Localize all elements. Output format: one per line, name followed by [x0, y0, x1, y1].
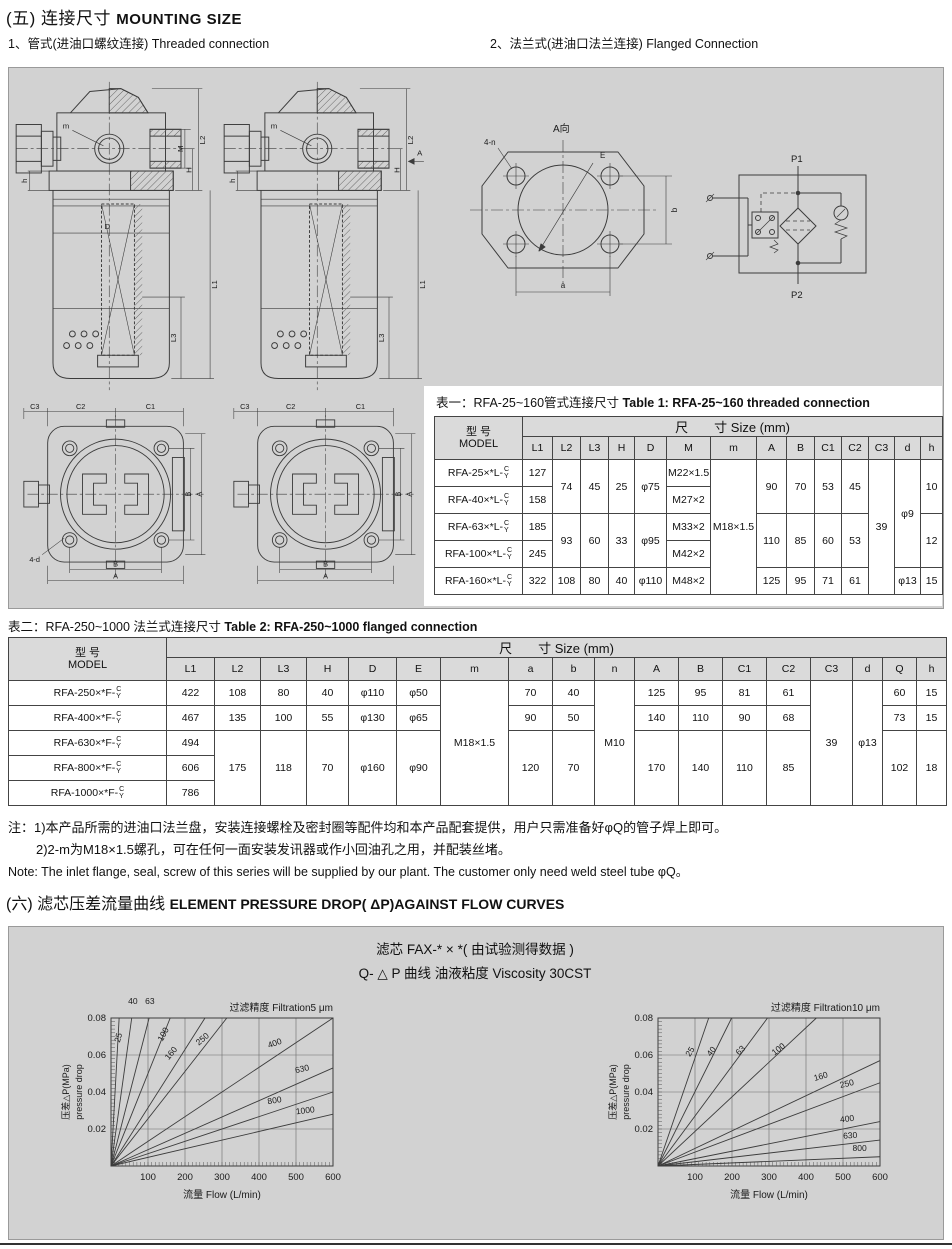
dim-label-a: a [561, 281, 566, 290]
pressure-drop-chart-5um: 过滤精度 Filtration5 μm1002003004005006000.0… [55, 984, 375, 1224]
series-label-1000: 1000 [295, 1104, 315, 1116]
y-tick-label: 0.02 [88, 1124, 107, 1135]
table-cell: 118 [261, 731, 307, 806]
table-cell: φ110 [635, 568, 667, 595]
y-axis-label-en: pressure drop [74, 1064, 84, 1120]
x-tick-label: 400 [798, 1172, 814, 1183]
table-cell: 80 [261, 681, 307, 706]
series-label-630: 630 [294, 1062, 310, 1075]
column-header-C2: C2 [842, 437, 869, 460]
table1-container: 型 号MODEL尺 寸 Size (mm)L1L2L3HDMmABC1C2C3d… [434, 416, 943, 595]
column-header-C1: C1 [723, 658, 767, 681]
table-cell: 494 [167, 731, 215, 756]
column-header-H: H [609, 437, 635, 460]
subtitle-threaded: 1、管式(进油口螺纹连接) Threaded connection [8, 33, 269, 52]
x-tick-label: 600 [872, 1172, 888, 1183]
column-header-b: b [553, 658, 595, 681]
dim-label-L3: L3 [169, 334, 178, 343]
note-line-1: 注：1)本产品所需的进油口法兰盘，安装连接螺栓及密封圈等配件均和本产品配套提供，… [8, 817, 944, 839]
x-tick-label: 500 [288, 1172, 304, 1183]
table-cell: M33×2 [667, 514, 711, 541]
table-cell: 422 [167, 681, 215, 706]
series-label-100: 100 [155, 1025, 171, 1042]
dim-label-B-bottom: B [323, 560, 328, 569]
dim-label-L2: L2 [406, 136, 415, 145]
table-cell: RFA-250×*F-CY [9, 681, 167, 706]
table-cell: 18 [917, 731, 947, 806]
table1-title: 表一：RFA-25~160管式连接尺寸 Table 1: RFA-25~160 … [436, 392, 870, 411]
dim-label-A-bottom: A [323, 572, 328, 581]
pressure-drop-chart-10um: 过滤精度 Filtration10 μm1002003004005006000.… [602, 984, 922, 1224]
table-cell: 110 [757, 514, 787, 568]
model-suffix-stack: CY [119, 786, 124, 800]
table-cell: φ13 [895, 568, 921, 595]
table-cell: 53 [815, 460, 842, 514]
notes-block: 注：1)本产品所需的进油口法兰盘，安装连接螺栓及密封圈等配件均和本产品配套提供，… [8, 817, 944, 883]
series-label-63: 63 [145, 996, 155, 1006]
table-cell: 25 [609, 460, 635, 514]
table-cell: 40 [609, 568, 635, 595]
table-cell: M42×2 [667, 541, 711, 568]
x-axis-label: 流量 Flow (L/min) [730, 1188, 808, 1201]
series-label-250: 250 [839, 1077, 855, 1090]
column-header-n: n [595, 658, 635, 681]
hydraulic-circuit-symbol: P1 P2 [698, 126, 948, 316]
column-header-D: D [349, 658, 397, 681]
series-label-250: 250 [194, 1030, 212, 1047]
table-cell: 467 [167, 706, 215, 731]
series-label-630: 630 [843, 1130, 858, 1141]
dim-label-B-right: B [394, 492, 403, 497]
series-label-800: 800 [853, 1143, 867, 1153]
size-header: 尺 寸 Size (mm) [167, 638, 947, 658]
table-cell: 68 [767, 706, 811, 731]
series-label-25: 25 [112, 1031, 124, 1043]
table-cell: 12 [921, 514, 943, 568]
table-cell: 74 [553, 460, 581, 514]
series-label-160: 160 [162, 1044, 179, 1062]
table-cell: 140 [635, 706, 679, 731]
spec-table: 型 号MODEL尺 寸 Size (mm)L1L2L3HDMmABC1C2C3d… [434, 416, 943, 595]
x-tick-label: 600 [325, 1172, 341, 1183]
table-cell: 110 [679, 706, 723, 731]
table-row: RFA-25×*L-CY127744525φ75M22×1.5M18×1.590… [435, 460, 943, 487]
dim-label-B-bottom: B [113, 560, 118, 569]
catalog-page: (五) 连接尺寸 MOUNTING SIZE 1、管式(进油口螺纹连接) Thr… [0, 0, 952, 1249]
table-cell: φ110 [349, 681, 397, 706]
y-tick-label: 0.04 [635, 1087, 654, 1098]
table-cell: 60 [815, 514, 842, 568]
x-tick-label: 300 [214, 1172, 230, 1183]
model-suffix-stack: CY [507, 574, 512, 588]
chart-caption: 过滤精度 Filtration5 μm [229, 1001, 333, 1014]
table-cell: 100 [261, 706, 307, 731]
model-suffix-stack: CY [116, 761, 121, 775]
column-header-C3: C3 [869, 437, 895, 460]
table-cell: 10 [921, 460, 943, 514]
table-cell: 85 [787, 514, 815, 568]
column-header-B: B [679, 658, 723, 681]
column-header-D: D [635, 437, 667, 460]
table-cell: M10 [595, 681, 635, 806]
dim-label-C2: C2 [286, 402, 295, 411]
note-line-en: Note: The inlet flange, seal, screw of t… [8, 861, 944, 883]
column-header-C2: C2 [767, 658, 811, 681]
table-cell: 127 [523, 460, 553, 487]
dim-label-C3: C3 [30, 402, 39, 411]
size-header: 尺 寸 Size (mm) [523, 417, 943, 437]
table-cell: 61 [842, 568, 869, 595]
section6-title: (六) 滤芯压差流量曲线 ELEMENT PRESSURE DROP( ΔP)A… [6, 890, 564, 914]
table-cell: 185 [523, 514, 553, 541]
table-cell: 55 [307, 706, 349, 731]
table-row: RFA-63×*L-CY185936033φ95M33×211085605312 [435, 514, 943, 541]
dim-label-L3: L3 [377, 334, 386, 343]
column-header-H: H [307, 658, 349, 681]
column-header-L3: L3 [261, 658, 307, 681]
y-tick-label: 0.02 [635, 1124, 654, 1135]
view-title: A向 [553, 122, 570, 135]
section5-title: (五) 连接尺寸 MOUNTING SIZE [6, 4, 242, 29]
table-cell: 60 [883, 681, 917, 706]
x-tick-label: 500 [835, 1172, 851, 1183]
bolt-count-label: 4-d [29, 555, 40, 564]
column-header-L1: L1 [523, 437, 553, 460]
table-cell: 125 [757, 568, 787, 595]
table-cell: 39 [869, 460, 895, 595]
table-cell: 80 [581, 568, 609, 595]
table-cell: 85 [767, 731, 811, 806]
y-tick-label: 0.04 [88, 1087, 107, 1098]
bolt-count-label: 4-n [484, 138, 496, 147]
model-suffix-stack: CY [504, 493, 509, 507]
subtitle-flanged-en: Flanged Connection [646, 37, 758, 51]
table-cell: M27×2 [667, 487, 711, 514]
x-tick-label: 300 [761, 1172, 777, 1183]
table-cell: φ13 [853, 681, 883, 806]
column-header-L2: L2 [553, 437, 581, 460]
column-header-L1: L1 [167, 658, 215, 681]
column-header-B: B [787, 437, 815, 460]
table-cell: 108 [553, 568, 581, 595]
table-cell: 140 [679, 731, 723, 806]
column-header-m: m [711, 437, 757, 460]
dim-label-H: H [185, 167, 194, 173]
subtitle-threaded-zh: 1、管式(进油口螺纹连接) [8, 37, 148, 51]
table-cell: φ95 [635, 514, 667, 568]
table2-title: 表二：RFA-250~1000 法兰式连接尺寸 Table 2: RFA-250… [8, 616, 477, 635]
table-cell: 33 [609, 514, 635, 568]
port-label-p2: P2 [791, 290, 803, 301]
table-cell: 606 [167, 756, 215, 781]
table2-title-zh: 表二：RFA-250~1000 法兰式连接尺寸 [8, 620, 221, 634]
table-cell: RFA-630×*F-CY [9, 731, 167, 756]
table-cell: 93 [553, 514, 581, 568]
y-tick-label: 0.08 [88, 1013, 107, 1024]
column-header-h: h [917, 658, 947, 681]
table-cell: φ90 [397, 731, 441, 806]
table-cell: 108 [215, 681, 261, 706]
x-axis-label: 流量 Flow (L/min) [183, 1188, 261, 1201]
y-axis-label-zh: 压差△P(MPa) [607, 1064, 618, 1119]
x-tick-label: 100 [687, 1172, 703, 1183]
column-header-C1: C1 [815, 437, 842, 460]
table-cell: M22×1.5 [667, 460, 711, 487]
section5-title-en: MOUNTING SIZE [116, 11, 242, 28]
dim-label-b: b [670, 207, 679, 212]
filter2-dimensions [236, 89, 424, 379]
dim-label-m: m [271, 121, 277, 130]
table2-title-en: Table 2: RFA-250~1000 flanged connection [224, 620, 477, 634]
table-cell: 90 [723, 706, 767, 731]
table-cell: RFA-800×*F-CY [9, 756, 167, 781]
table-cell: M18×1.5 [441, 681, 509, 806]
x-tick-label: 200 [724, 1172, 740, 1183]
table-cell: φ9 [895, 460, 921, 568]
table-cell: φ75 [635, 460, 667, 514]
column-header-C3: C3 [811, 658, 853, 681]
series-label-160: 160 [813, 1069, 830, 1083]
section5-title-zh: (五) 连接尺寸 [6, 9, 111, 28]
table-cell: 40 [553, 681, 595, 706]
flange-shapes [470, 140, 672, 296]
table-cell: 110 [723, 731, 767, 806]
table-cell: 81 [723, 681, 767, 706]
table-cell: 45 [581, 460, 609, 514]
table-cell: 170 [635, 731, 679, 806]
column-header-A: A [635, 658, 679, 681]
spec-table: 型 号MODEL尺 寸 Size (mm)L1L2L3HDEmabnABC1C2… [8, 637, 947, 806]
table-cell: 70 [787, 460, 815, 514]
dim-label-L2: L2 [198, 136, 207, 145]
page-bottom-rule [0, 1243, 952, 1245]
dim-label-C3: C3 [240, 402, 249, 411]
column-header-L2: L2 [215, 658, 261, 681]
table-cell: RFA-1000×*F-CY [9, 781, 167, 806]
column-header-d: d [895, 437, 921, 460]
model-suffix-stack: CY [116, 736, 121, 750]
column-header-A: A [757, 437, 787, 460]
x-tick-label: 100 [140, 1172, 156, 1183]
table-cell: 39 [811, 681, 853, 806]
table1-title-en: Table 1: RFA-25~160 threaded connection [623, 396, 870, 410]
table-cell: 125 [635, 681, 679, 706]
table-cell: φ160 [349, 731, 397, 806]
dim-label-E: E [600, 151, 605, 160]
table-cell: 61 [767, 681, 811, 706]
series-label-400: 400 [839, 1113, 855, 1125]
table-cell: 40 [307, 681, 349, 706]
symbol-labels: P1 P2 [791, 154, 803, 301]
dim-label-A-right: A [405, 492, 414, 497]
dim-label-A-bottom: A [113, 572, 118, 581]
subtitle-flanged: 2、法兰式(进油口法兰连接) Flanged Connection [490, 33, 758, 52]
dim-label-L1: L1 [418, 280, 427, 289]
dim-label-h: h [20, 179, 29, 183]
column-header-d: d [853, 658, 883, 681]
subtitle-flanged-zh: 2、法兰式(进油口法兰连接) [490, 37, 643, 51]
table-cell: 120 [509, 731, 553, 806]
section6-title-zh: (六) 滤芯压差流量曲线 [6, 896, 165, 913]
table1-title-zh: 表一：RFA-25~160管式连接尺寸 [436, 396, 619, 410]
filter-top-view-1: C3 C2 C1 B A B A 4-d [22, 400, 210, 592]
table-cell: 175 [215, 731, 261, 806]
table-cell: 53 [842, 514, 869, 568]
subtitle-threaded-en: Threaded connection [152, 37, 269, 51]
table2-container: 型 号MODEL尺 寸 Size (mm)L1L2L3HDEmabnABC1C2… [8, 637, 947, 806]
charts-title-line1: 滤芯 FAX-* × *( 由试验测得数据 ) [8, 938, 942, 958]
table-cell: φ130 [349, 706, 397, 731]
table-cell: 73 [883, 706, 917, 731]
view-arrow-label-A: A [417, 149, 423, 158]
column-header-a: a [509, 658, 553, 681]
port-label-p1: P1 [791, 154, 803, 165]
symbol-shapes [706, 166, 866, 284]
model-suffix-stack: CY [504, 520, 509, 534]
model-suffix-stack: CY [507, 547, 512, 561]
y-tick-label: 0.08 [635, 1013, 654, 1024]
table-cell: 95 [787, 568, 815, 595]
table-cell: φ50 [397, 681, 441, 706]
dim-label-h: h [228, 179, 237, 183]
filter-section-view-2: m h H L2 L1 L3 A [222, 76, 428, 396]
table-cell: 15 [917, 681, 947, 706]
table-cell: 50 [553, 706, 595, 731]
table-cell: 15 [917, 706, 947, 731]
series-label-400: 400 [266, 1036, 283, 1050]
table-cell: RFA-160×*L-CY [435, 568, 523, 595]
dim-label-C2: C2 [76, 402, 85, 411]
dim-label-L1: L1 [210, 280, 219, 289]
dim-label-D: D [104, 222, 110, 231]
table-cell: 245 [523, 541, 553, 568]
table-cell: 786 [167, 781, 215, 806]
dim-label-B-right: B [184, 492, 193, 497]
table-cell: RFA-40×*L-CY [435, 487, 523, 514]
column-header-E: E [397, 658, 441, 681]
filter-top-view-2: C3 C2 C1 B A B A [232, 400, 420, 592]
model-column-header: 型 号MODEL [9, 638, 167, 681]
table-cell: 71 [815, 568, 842, 595]
table-cell: 70 [509, 681, 553, 706]
column-header-M: M [667, 437, 711, 460]
y-tick-label: 0.06 [88, 1050, 107, 1061]
section6-title-en: ELEMENT PRESSURE DROP( ΔP)AGAINST FLOW C… [170, 896, 565, 912]
table-cell: 70 [307, 731, 349, 806]
x-tick-label: 400 [251, 1172, 267, 1183]
series-label-40: 40 [704, 1044, 718, 1058]
table-cell: 135 [215, 706, 261, 731]
filter-section-view-1: m h D M H L2 L1 L3 [14, 76, 220, 396]
series-label-800: 800 [267, 1094, 283, 1106]
column-header-m: m [441, 658, 509, 681]
table-cell: 90 [757, 460, 787, 514]
table-cell: M18×1.5 [711, 460, 757, 595]
series-label-40: 40 [128, 996, 138, 1006]
table-cell: RFA-100×*L-CY [435, 541, 523, 568]
column-header-h: h [921, 437, 943, 460]
dim-label-C1: C1 [356, 402, 365, 411]
table-cell: 322 [523, 568, 553, 595]
note-line-2: 2)2-m为M18×1.5螺孔，可在任何一面安装发讯器或作小回油孔之用，并配装丝… [8, 839, 944, 861]
table-cell: 158 [523, 487, 553, 514]
flange-face-view: A向 4-n E a b [438, 116, 688, 316]
table-cell: 70 [553, 731, 595, 806]
column-header-L3: L3 [581, 437, 609, 460]
table-cell: RFA-400×*F-CY [9, 706, 167, 731]
dim-label-A-right: A [195, 492, 204, 497]
dim-label-m: m [63, 121, 69, 130]
charts-title-line2: Q- △ P 曲线 油液粘度 Viscosity 30CST [8, 962, 942, 982]
table-cell: 102 [883, 731, 917, 806]
table-cell: 45 [842, 460, 869, 514]
filter1-dimensions [28, 89, 214, 379]
table-row: RFA-250×*F-CY4221088040φ110φ50M18×1.5704… [9, 681, 947, 706]
table-cell: RFA-25×*L-CY [435, 460, 523, 487]
model-suffix-stack: CY [116, 686, 121, 700]
y-axis-label-zh: 压差△P(MPa) [60, 1064, 71, 1119]
model-suffix-stack: CY [504, 466, 509, 480]
dim-label-C1: C1 [146, 402, 155, 411]
table-cell: 15 [921, 568, 943, 595]
flange-labels: A向 4-n E a b [484, 122, 679, 290]
dim-label-H: H [393, 167, 402, 173]
model-suffix-stack: CY [116, 711, 121, 725]
table-cell: 60 [581, 514, 609, 568]
table-cell: 90 [509, 706, 553, 731]
dim-label-M: M [176, 145, 185, 151]
x-tick-label: 200 [177, 1172, 193, 1183]
table-cell: M48×2 [667, 568, 711, 595]
table-cell: φ65 [397, 706, 441, 731]
chart-caption: 过滤精度 Filtration10 μm [771, 1001, 880, 1014]
column-header-Q: Q [883, 658, 917, 681]
table-row: RFA-160×*L-CY3221088040φ110M48×212595716… [435, 568, 943, 595]
model-column-header: 型 号MODEL [435, 417, 523, 460]
y-tick-label: 0.06 [635, 1050, 654, 1061]
y-axis-label-en: pressure drop [621, 1064, 631, 1120]
table-cell: RFA-63×*L-CY [435, 514, 523, 541]
table-cell: 95 [679, 681, 723, 706]
